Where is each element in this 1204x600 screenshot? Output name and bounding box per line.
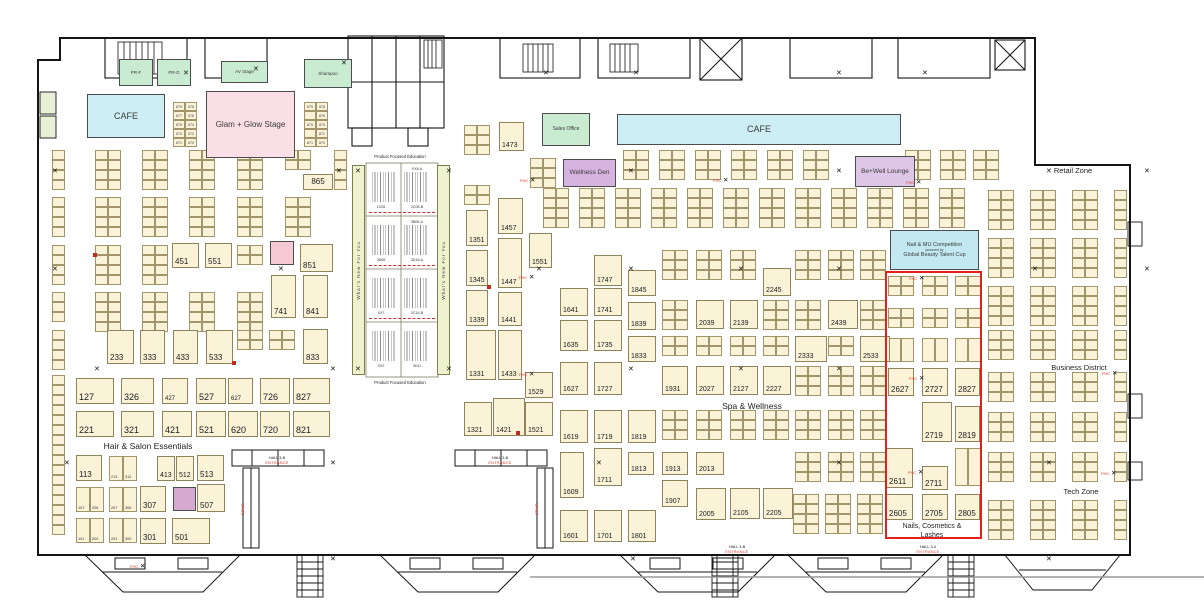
booth-2605[interactable]: 2605 (886, 494, 913, 520)
booth-cell[interactable] (675, 300, 688, 310)
booth-cell[interactable] (873, 270, 886, 280)
booth-cell[interactable] (651, 198, 664, 208)
booth-cell[interactable] (808, 260, 821, 270)
booth-cell[interactable] (1072, 350, 1085, 360)
booth-cell[interactable] (636, 170, 649, 180)
booth-1727[interactable]: 1727 (594, 362, 622, 395)
booth-cell[interactable] (1030, 330, 1043, 340)
booth-cell[interactable] (955, 338, 968, 362)
booth-cell[interactable] (95, 227, 108, 237)
booth-cell[interactable] (672, 170, 685, 180)
booth-cell[interactable] (860, 260, 873, 270)
booth-1735[interactable]: 1735 (594, 320, 622, 351)
booth-cell[interactable] (1043, 340, 1056, 350)
booth-1839[interactable]: 1839 (628, 302, 656, 330)
booth-cell[interactable] (988, 350, 1001, 360)
booth-cell[interactable] (1114, 500, 1127, 510)
booth-cell[interactable] (662, 270, 675, 280)
booth-2005[interactable]: 2005 (696, 488, 726, 520)
booth-cell[interactable] (838, 504, 851, 514)
booth-cell[interactable] (1085, 258, 1098, 268)
booth-cell[interactable] (95, 275, 108, 285)
booth-cell[interactable] (1085, 530, 1098, 540)
booth-cell[interactable] (142, 197, 155, 207)
booth-cell[interactable] (743, 260, 756, 270)
booth-cell[interactable] (189, 197, 202, 207)
booth-cell[interactable] (870, 524, 883, 534)
booth-cell[interactable] (935, 286, 948, 296)
booth-cell[interactable] (841, 386, 854, 396)
booth-cell[interactable] (1001, 220, 1014, 230)
booth-cell[interactable] (237, 207, 250, 217)
booth-cell[interactable] (108, 227, 121, 237)
booth-cell[interactable] (841, 376, 854, 386)
booth-741[interactable]: 741 (271, 275, 296, 318)
booth-cell[interactable] (1072, 432, 1085, 442)
booth-1907[interactable]: 1907 (662, 480, 688, 507)
booth-cell[interactable] (841, 430, 854, 440)
booth-cell[interactable] (95, 170, 108, 180)
booth-cell[interactable] (723, 208, 736, 218)
booth-cell[interactable] (952, 198, 965, 208)
booth-cell[interactable] (1072, 296, 1085, 306)
booth-cell[interactable] (1001, 472, 1014, 482)
booth-pair-column[interactable]: 679578677576675574673572671570 (173, 102, 197, 147)
booth-cell[interactable] (579, 198, 592, 208)
booth-cell[interactable] (142, 160, 155, 170)
booth-1627[interactable]: 1627 (560, 362, 588, 395)
booth-cell[interactable] (916, 198, 929, 208)
booth-cell[interactable] (1043, 372, 1056, 382)
booth-cell[interactable] (662, 300, 675, 310)
booth-cell[interactable] (988, 432, 1001, 442)
booth-cell[interactable] (939, 218, 952, 228)
booth-cell[interactable] (744, 160, 757, 170)
booth-cell[interactable] (922, 338, 935, 362)
booth-cell[interactable] (1085, 412, 1098, 422)
booth-cell[interactable] (237, 302, 250, 312)
booth-cell[interactable] (675, 410, 688, 420)
booth-cell[interactable] (636, 150, 649, 160)
booth-cell[interactable] (763, 346, 776, 356)
booth-cell[interactable] (696, 270, 709, 280)
booth-cell[interactable] (1043, 350, 1056, 360)
booth-cell[interactable] (1114, 412, 1127, 422)
booth-cell[interactable] (988, 510, 1001, 520)
booth-cell[interactable] (142, 180, 155, 190)
booth-cell[interactable] (988, 452, 1001, 462)
booth-cell[interactable] (860, 300, 873, 310)
booth-cell[interactable] (709, 430, 722, 440)
booth-cell[interactable] (918, 150, 931, 160)
booth-1331[interactable]: 1331 (466, 330, 496, 380)
booth-2819[interactable]: 2819 (955, 406, 980, 442)
booth-cell[interactable] (1043, 330, 1056, 340)
booth-cell[interactable] (282, 340, 295, 350)
booth-cell[interactable] (803, 160, 816, 170)
booth-cell[interactable] (1114, 330, 1127, 340)
booth-cell[interactable] (675, 270, 688, 280)
booth-cell[interactable] (52, 515, 65, 525)
booth-pair[interactable]: 201300 (109, 518, 137, 543)
booth-cell[interactable] (828, 420, 841, 430)
booth-cell[interactable] (988, 238, 1001, 248)
booth-cell[interactable] (968, 276, 981, 286)
booth-cell[interactable]: 679 (173, 102, 185, 111)
booth-cell[interactable] (1114, 316, 1127, 326)
booth-cell[interactable] (988, 472, 1001, 482)
booth-1819[interactable]: 1819 (628, 410, 656, 443)
booth-cell[interactable] (1043, 296, 1056, 306)
booth-cell[interactable] (1085, 316, 1098, 326)
booth-cell[interactable] (808, 462, 821, 472)
booth-1619[interactable]: 1619 (560, 410, 588, 443)
booth-cell[interactable] (237, 180, 250, 190)
booth-cell[interactable] (1114, 392, 1127, 402)
booth-cell[interactable] (803, 170, 816, 180)
booth-cell[interactable] (857, 514, 870, 524)
booth-cell[interactable] (1030, 306, 1043, 316)
booth-533[interactable]: 533 (206, 330, 233, 364)
booth-cell[interactable] (860, 462, 873, 472)
booth-cell[interactable] (901, 338, 914, 362)
booth-cell[interactable] (844, 188, 857, 198)
booth-cell[interactable] (939, 198, 952, 208)
booth-1551[interactable]: 1551 (529, 233, 552, 268)
booth-cell[interactable] (52, 485, 65, 495)
booth-1913[interactable]: 1913 (662, 452, 688, 475)
booth-cell[interactable] (795, 462, 808, 472)
booth-cell[interactable] (828, 336, 841, 346)
booth-cell[interactable] (1114, 452, 1127, 462)
booth-cell[interactable] (464, 145, 477, 155)
booth-cell[interactable] (841, 420, 854, 430)
booth-cell[interactable] (795, 270, 808, 280)
booth-pair[interactable]: 101200 (76, 518, 104, 543)
booth-cell[interactable] (873, 410, 886, 420)
booth-cell[interactable] (808, 250, 821, 260)
booth-233[interactable]: 233 (107, 330, 134, 364)
booth-cell[interactable]: 870 (316, 138, 328, 147)
booth-cell[interactable] (730, 250, 743, 260)
booth-cell[interactable] (831, 208, 844, 218)
booth-cell[interactable] (1114, 268, 1127, 278)
booth-cell[interactable] (940, 170, 953, 180)
booth-cell[interactable] (731, 160, 744, 170)
booth-cell[interactable] (867, 198, 880, 208)
booth-cell[interactable] (1030, 340, 1043, 350)
booth-1711[interactable]: 1711 (594, 448, 622, 486)
booth-cell[interactable] (52, 207, 65, 217)
booth-333[interactable]: 333 (140, 330, 165, 364)
booth-cell[interactable] (1072, 248, 1085, 258)
booth-cell[interactable] (52, 302, 65, 312)
booth-cell[interactable] (52, 505, 65, 515)
booth-cell[interactable] (142, 265, 155, 275)
booth-pair[interactable]: 207306 (109, 487, 137, 512)
booth-cell[interactable] (988, 530, 1001, 540)
booth-cell[interactable] (250, 302, 263, 312)
booth-cell[interactable] (988, 190, 1001, 200)
booth-127[interactable]: 127 (76, 378, 114, 404)
booth-cell[interactable] (189, 180, 202, 190)
booth-cell[interactable] (659, 160, 672, 170)
booth-cell[interactable] (1030, 220, 1043, 230)
booth-cell[interactable] (1001, 530, 1014, 540)
booth-cell[interactable]: 206 (90, 487, 104, 512)
booth-cell[interactable] (1001, 296, 1014, 306)
booth-cell[interactable] (772, 208, 785, 218)
booth-cell[interactable] (1072, 316, 1085, 326)
booth-cell[interactable] (838, 524, 851, 534)
booth-cell[interactable] (675, 346, 688, 356)
booth-cell[interactable] (1043, 210, 1056, 220)
booth-cell[interactable] (477, 195, 490, 205)
booth-cell[interactable] (867, 188, 880, 198)
booth-cell[interactable] (1030, 510, 1043, 520)
booth-cell[interactable] (52, 312, 65, 322)
booth-cell[interactable] (142, 207, 155, 217)
booth-cell[interactable] (1043, 422, 1056, 432)
booth-cell[interactable] (888, 308, 901, 318)
booth-cell[interactable] (888, 318, 901, 328)
booth-cell[interactable] (795, 320, 808, 330)
booth-cell[interactable] (1001, 520, 1014, 530)
booth-cell[interactable] (759, 188, 772, 198)
booth-cell[interactable] (1001, 412, 1014, 422)
booth-cell[interactable] (808, 320, 821, 330)
booth-cell[interactable] (1085, 268, 1098, 278)
booth-cell[interactable] (202, 227, 215, 237)
booth-cell[interactable] (806, 494, 819, 504)
booth-cell[interactable] (988, 200, 1001, 210)
booth-1601[interactable]: 1601 (560, 510, 588, 542)
booth-2533[interactable]: 2533 (860, 336, 890, 362)
booth-cell[interactable] (1085, 190, 1098, 200)
booth-cell[interactable] (860, 420, 873, 430)
booth-cell[interactable] (860, 366, 873, 376)
booth-cell[interactable] (298, 227, 311, 237)
booth-cell[interactable] (901, 286, 914, 296)
booth-cell[interactable] (189, 292, 202, 302)
booth-cell[interactable] (841, 336, 854, 346)
booth-cell[interactable] (763, 300, 776, 310)
booth-1421[interactable]: 1421 (493, 398, 525, 436)
booth-cell[interactable] (592, 208, 605, 218)
booth-cell[interactable] (988, 462, 1001, 472)
booth-cell[interactable] (731, 170, 744, 180)
booth-cell[interactable] (808, 310, 821, 320)
booth-cell[interactable] (1043, 530, 1056, 540)
booth-433[interactable]: 433 (173, 330, 198, 364)
booth-827[interactable]: 827 (293, 378, 330, 404)
booth-cell[interactable] (1030, 472, 1043, 482)
booth-cell[interactable] (282, 330, 295, 340)
booth-cell[interactable] (651, 208, 664, 218)
booth-cell[interactable] (95, 180, 108, 190)
booth-cell[interactable] (988, 382, 1001, 392)
booth-cell[interactable] (1043, 258, 1056, 268)
booth-cell[interactable] (52, 395, 65, 405)
booth-cell[interactable] (1114, 296, 1127, 306)
booth-cell[interactable] (953, 150, 966, 160)
booth-cell[interactable] (828, 472, 841, 482)
booth-cell[interactable] (709, 336, 722, 346)
booth-cell[interactable] (250, 227, 263, 237)
booth-cell[interactable] (857, 494, 870, 504)
zone-nail-mu-competition[interactable]: Nail & MU Competitionpowered byGlobal Be… (890, 230, 979, 270)
booth-2719[interactable]: 2719 (922, 402, 952, 442)
booth-cell[interactable] (736, 188, 749, 198)
booth-cell[interactable] (95, 150, 108, 160)
booth-cell[interactable] (988, 340, 1001, 350)
booth-cell[interactable] (1085, 462, 1098, 472)
booth-cell[interactable] (918, 160, 931, 170)
booth-1719[interactable]: 1719 (594, 410, 622, 443)
booth-cell[interactable] (675, 320, 688, 330)
booth-cell[interactable] (1085, 210, 1098, 220)
booth-cell[interactable] (1072, 452, 1085, 462)
booth-cell[interactable] (730, 420, 743, 430)
booth-cell[interactable] (202, 217, 215, 227)
booth-cell[interactable] (1072, 306, 1085, 316)
booth-cell[interactable] (1043, 520, 1056, 530)
booth-cell[interactable] (155, 180, 168, 190)
booth-cell[interactable] (1001, 316, 1014, 326)
booth-cell[interactable] (202, 207, 215, 217)
booth-cell[interactable] (873, 366, 886, 376)
booth-cell[interactable] (873, 386, 886, 396)
booth-cell[interactable]: 673 (173, 129, 185, 138)
booth-cell[interactable]: 578 (185, 102, 197, 111)
booth-cell[interactable] (873, 250, 886, 260)
booth-cell[interactable] (696, 410, 709, 420)
booth-cell[interactable] (1114, 210, 1127, 220)
booth-cell[interactable] (1043, 500, 1056, 510)
booth-cell[interactable] (52, 180, 65, 190)
booth-cell[interactable] (662, 320, 675, 330)
booth-cell[interactable] (628, 208, 641, 218)
zone-glam-glow-stage[interactable]: Glam + Glow Stage (206, 91, 295, 158)
booth-cell[interactable] (464, 125, 477, 135)
booth-cell[interactable] (615, 218, 628, 228)
booth-cell[interactable] (155, 227, 168, 237)
booth-cell[interactable] (1030, 382, 1043, 392)
booth-cell[interactable] (901, 308, 914, 318)
booth-cell[interactable] (1043, 306, 1056, 316)
booth-cell[interactable] (867, 218, 880, 228)
booth-cell[interactable] (52, 292, 65, 302)
booth-cell[interactable] (795, 366, 808, 376)
booth-cell[interactable] (250, 340, 263, 350)
booth-527[interactable]: 527 (196, 378, 226, 404)
booth-cell[interactable] (860, 452, 873, 462)
booth-1747[interactable]: 1747 (594, 255, 622, 286)
booth-cell[interactable]: 574 (185, 120, 197, 129)
booth-cell[interactable] (763, 420, 776, 430)
booth-cell[interactable] (95, 207, 108, 217)
booth-cell[interactable] (772, 188, 785, 198)
booth-cell[interactable] (803, 150, 816, 160)
booth-501[interactable]: 501 (172, 518, 210, 544)
booth-cell[interactable] (860, 430, 873, 440)
booth-cell[interactable] (793, 524, 806, 534)
booth-2727[interactable]: 2727 (922, 368, 948, 396)
booth-cell[interactable] (1114, 340, 1127, 350)
booth-cell[interactable] (780, 150, 793, 160)
booth-cell[interactable] (1114, 530, 1127, 540)
booth-cell[interactable]: 675 (173, 120, 185, 129)
booth-cell[interactable] (880, 208, 893, 218)
booth-cell[interactable] (795, 310, 808, 320)
booth-cell[interactable] (142, 255, 155, 265)
booth-cell[interactable] (730, 410, 743, 420)
booth-cell[interactable] (1001, 330, 1014, 340)
booth-cell[interactable] (922, 308, 935, 318)
booth-cell[interactable] (237, 197, 250, 207)
booth-cell[interactable] (142, 217, 155, 227)
booth-cell[interactable] (968, 448, 981, 486)
booth-cell[interactable] (189, 227, 202, 237)
booth-2333[interactable]: 2333 (795, 336, 827, 362)
booth-cell[interactable] (95, 217, 108, 227)
booth-cell[interactable] (730, 336, 743, 346)
booth-cell[interactable] (955, 448, 968, 486)
booth-cell[interactable] (1030, 392, 1043, 402)
booth-cell[interactable] (743, 420, 756, 430)
booth-cell[interactable] (556, 218, 569, 228)
booth-cell[interactable] (808, 218, 821, 228)
booth-cell[interactable] (772, 218, 785, 228)
booth-cell[interactable] (988, 422, 1001, 432)
booth-cell[interactable]: 576 (185, 111, 197, 120)
booth-307[interactable]: 307 (140, 486, 166, 512)
booth-cell[interactable] (841, 270, 854, 280)
booth-cell[interactable] (1001, 210, 1014, 220)
booth-cell[interactable] (795, 430, 808, 440)
booth-cell[interactable] (825, 514, 838, 524)
booth-cell[interactable] (808, 386, 821, 396)
booth-1339[interactable]: 1339 (466, 290, 488, 326)
booth-cell[interactable] (955, 286, 968, 296)
booth-cell[interactable] (1085, 472, 1098, 482)
booth-cell[interactable] (870, 494, 883, 504)
booth-cell[interactable] (808, 198, 821, 208)
booth-cell[interactable] (808, 270, 821, 280)
booth-cell[interactable] (108, 275, 121, 285)
booth-cell[interactable] (155, 150, 168, 160)
booth-cell[interactable] (841, 462, 854, 472)
booth-cell[interactable] (615, 208, 628, 218)
booth-cell[interactable] (776, 320, 789, 330)
booth-cell[interactable] (108, 170, 121, 180)
booth-cell[interactable] (662, 410, 675, 420)
booth-cell[interactable] (1114, 190, 1127, 200)
booth-451[interactable]: 451 (172, 243, 199, 268)
booth-cell[interactable] (952, 218, 965, 228)
booth-cell[interactable] (687, 218, 700, 228)
booth-cell[interactable] (52, 445, 65, 455)
booth-cell[interactable] (579, 208, 592, 218)
booth-cell[interactable] (844, 208, 857, 218)
booth-cell[interactable] (155, 275, 168, 285)
booth-cell[interactable] (808, 430, 821, 440)
booth-cell[interactable] (142, 245, 155, 255)
booth-cell[interactable] (922, 318, 935, 328)
booth-cell[interactable] (988, 520, 1001, 530)
booth-cell[interactable] (298, 217, 311, 227)
booth-cell[interactable] (880, 218, 893, 228)
